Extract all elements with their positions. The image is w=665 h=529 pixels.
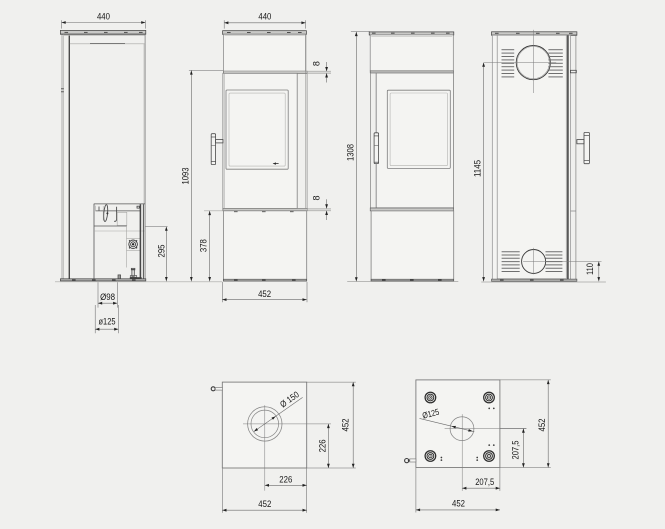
svg-text:440: 440 — [97, 12, 110, 22]
svg-text:295: 295 — [156, 244, 166, 257]
svg-text:207,5: 207,5 — [475, 477, 494, 487]
svg-text:378: 378 — [199, 239, 209, 252]
svg-text:440: 440 — [258, 12, 271, 22]
svg-text:1093: 1093 — [180, 167, 190, 184]
svg-text:207,5: 207,5 — [510, 440, 520, 459]
svg-text:1145: 1145 — [473, 160, 483, 177]
svg-text:8: 8 — [311, 195, 321, 200]
svg-text:452: 452 — [537, 418, 547, 431]
svg-text:1308: 1308 — [345, 144, 355, 161]
svg-text:8: 8 — [311, 61, 321, 66]
svg-text:452: 452 — [452, 498, 465, 508]
svg-text:452: 452 — [340, 418, 350, 431]
svg-text:226: 226 — [317, 439, 327, 452]
svg-text:452: 452 — [258, 289, 271, 299]
svg-text:226: 226 — [279, 474, 292, 484]
svg-text:110: 110 — [585, 263, 595, 275]
svg-text:452: 452 — [258, 499, 271, 509]
svg-text:Ø98: Ø98 — [100, 292, 115, 302]
svg-text:ø125: ø125 — [99, 316, 116, 326]
